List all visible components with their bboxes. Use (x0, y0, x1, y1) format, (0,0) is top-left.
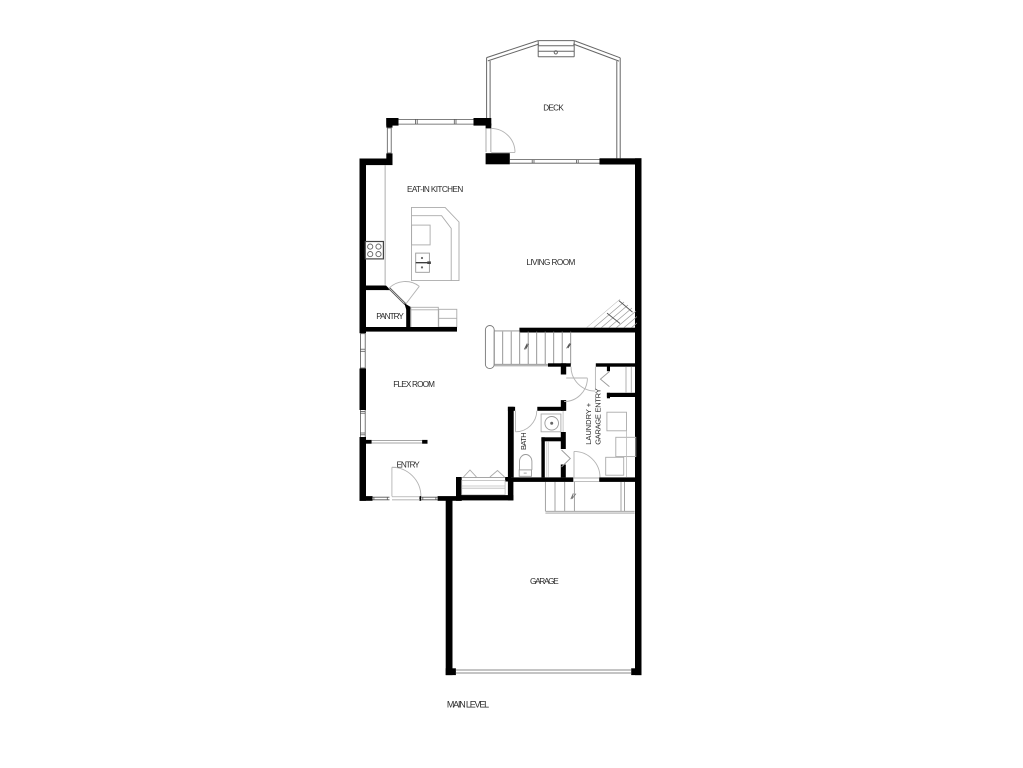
svg-text:EAT-IN KITCHEN: EAT-IN KITCHEN (407, 185, 464, 194)
svg-text:DECK: DECK (543, 104, 564, 113)
svg-text:LAUNDRY +: LAUNDRY + (584, 402, 593, 445)
svg-text:GARAGE: GARAGE (530, 577, 559, 586)
svg-text:LIVING ROOM: LIVING ROOM (526, 258, 575, 267)
svg-text:BATH: BATH (519, 432, 528, 450)
svg-text:GARAGE ENTRY: GARAGE ENTRY (593, 388, 602, 445)
svg-text:MAIN LEVEL: MAIN LEVEL (447, 699, 490, 709)
svg-text:PANTRY: PANTRY (376, 312, 404, 321)
svg-text:FLEX ROOM: FLEX ROOM (393, 380, 435, 389)
